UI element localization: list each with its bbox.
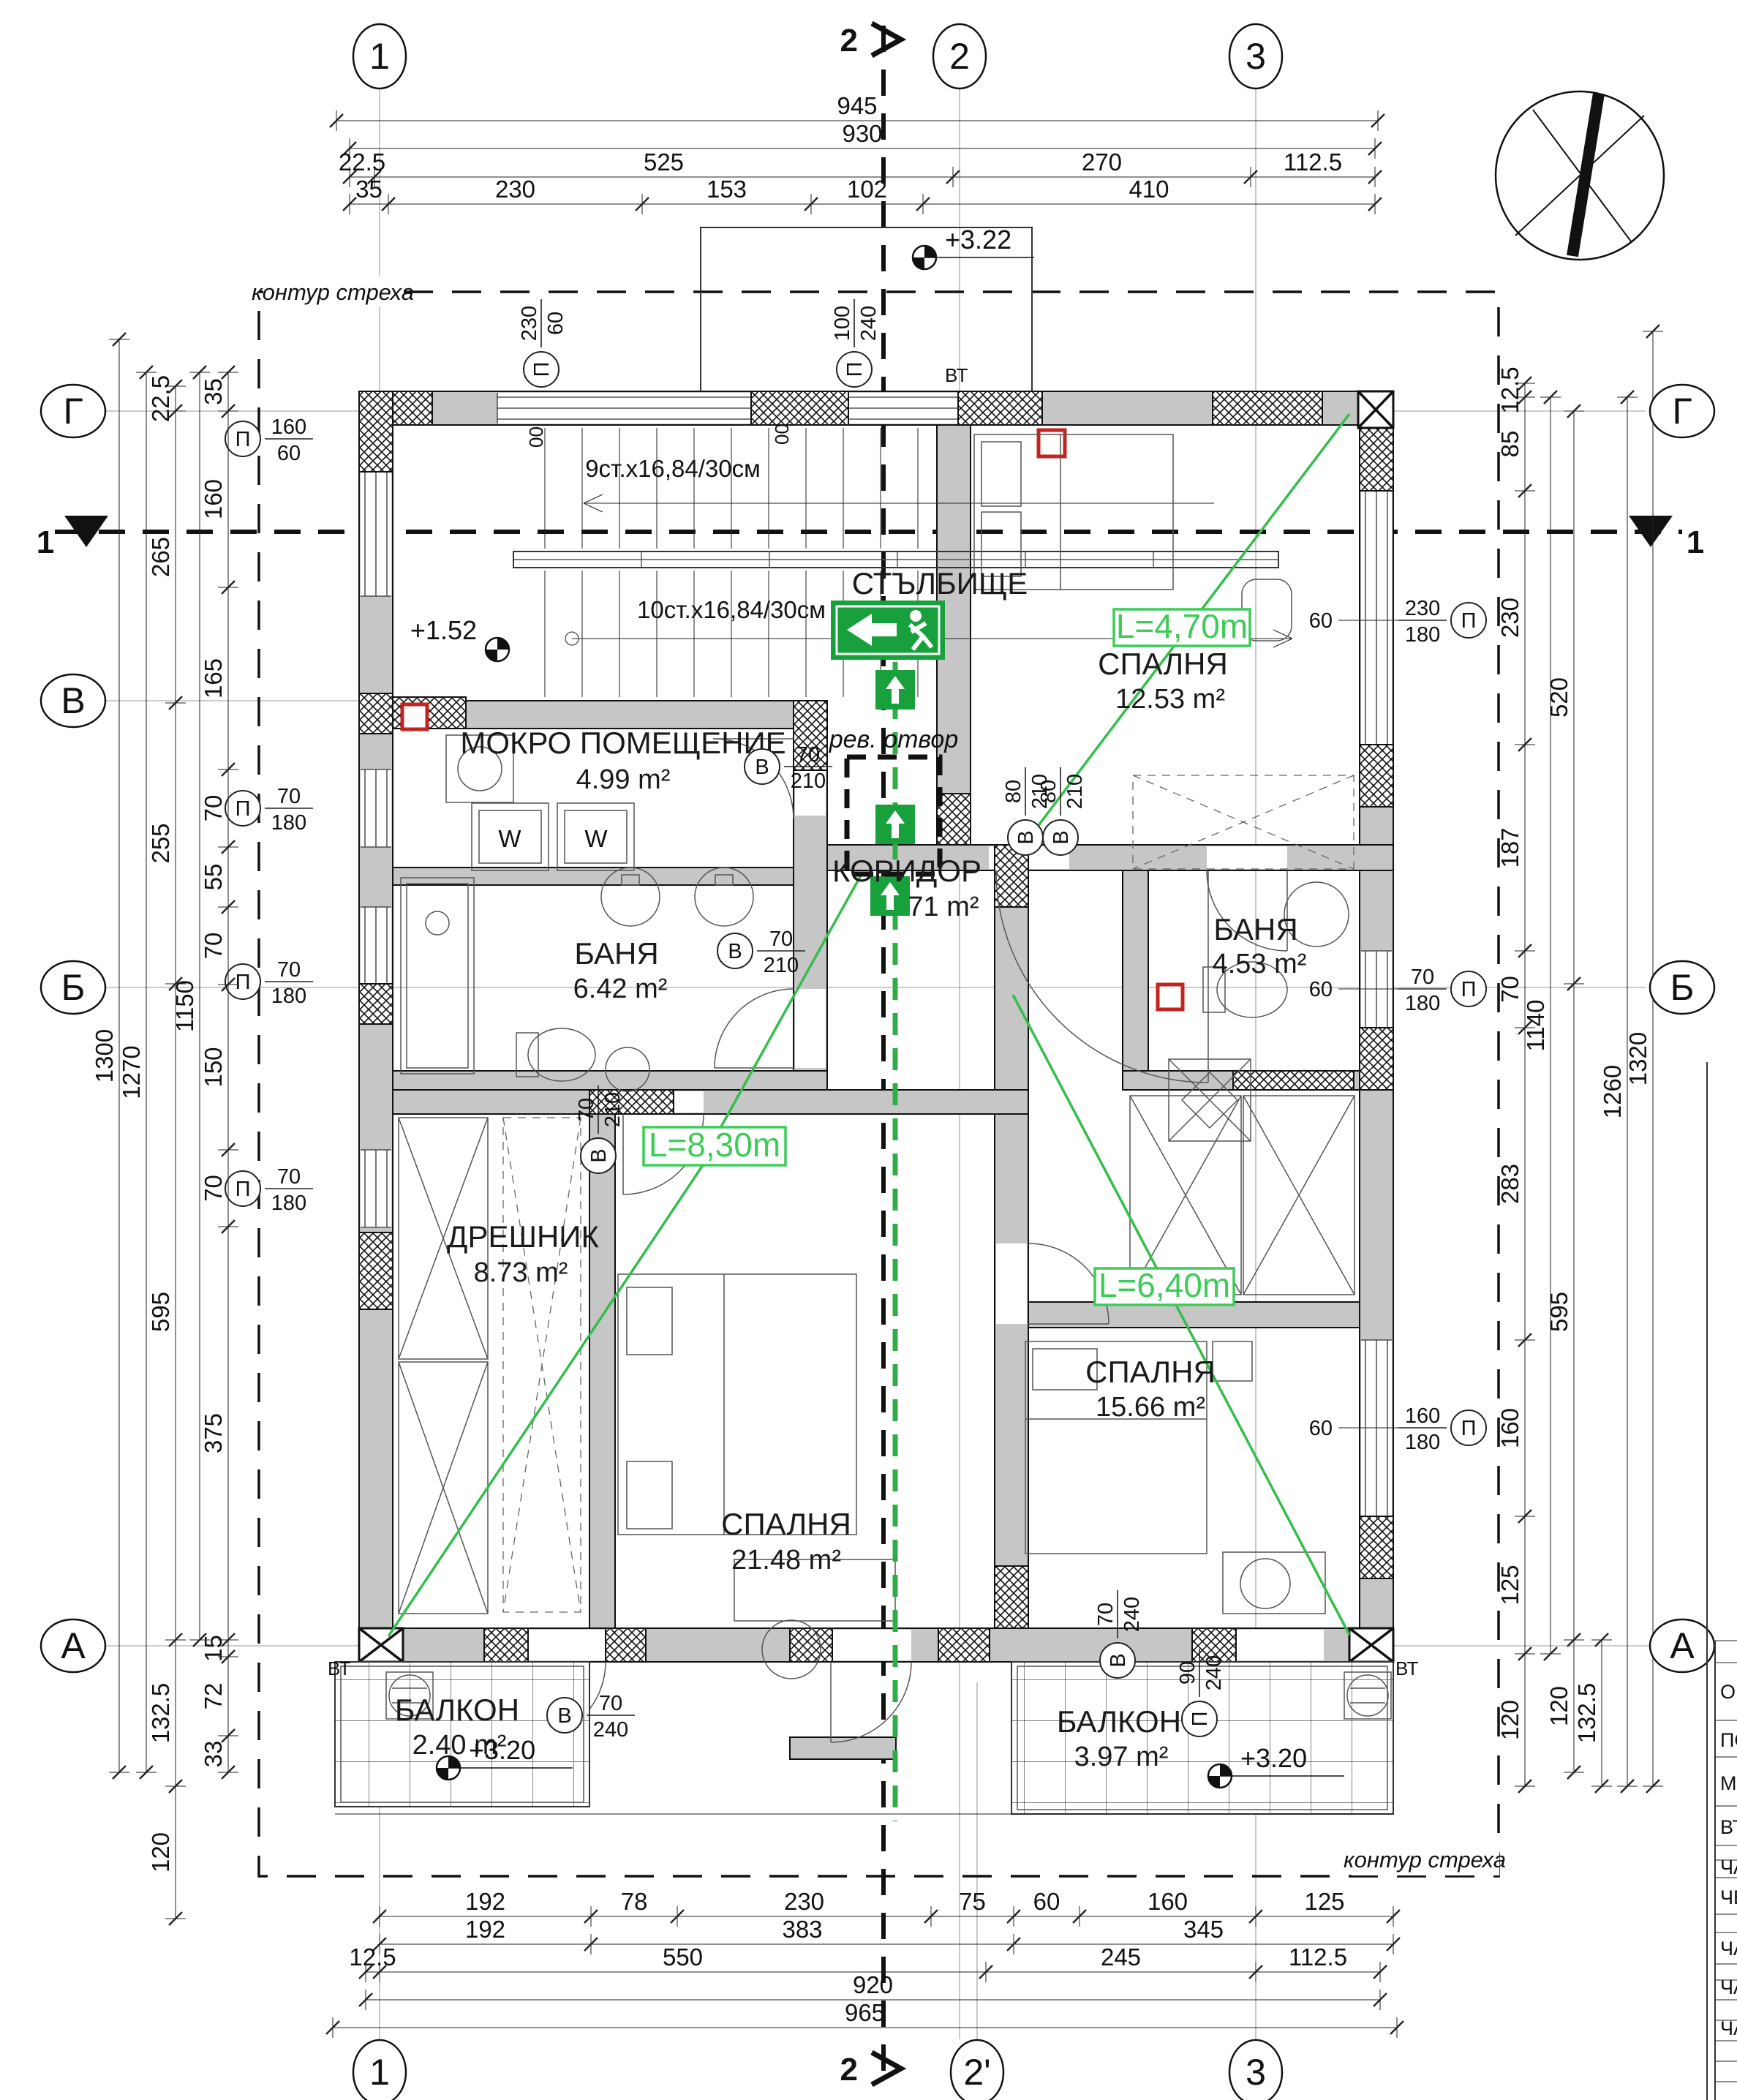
room-balcony-right: БАЛКОН xyxy=(1057,1704,1181,1739)
svg-text:70: 70 xyxy=(277,1165,301,1189)
svg-text:240: 240 xyxy=(1202,1655,1226,1690)
north-arrow-icon xyxy=(1496,91,1664,260)
svg-text:60: 60 xyxy=(1309,609,1333,633)
svg-text:1270: 1270 xyxy=(118,1045,145,1099)
svg-text:3: 3 xyxy=(1246,2052,1266,2093)
section-1-left-label: 1 xyxy=(37,524,54,560)
svg-text:265: 265 xyxy=(147,537,174,577)
washer-2-label: W xyxy=(584,825,608,852)
svg-text:255: 255 xyxy=(147,823,174,863)
corner-pier-ne xyxy=(1358,391,1393,428)
svg-text:70: 70 xyxy=(1496,976,1523,1003)
section-2-bottom-label: 2 xyxy=(840,2052,858,2088)
svg-text:383: 383 xyxy=(782,1916,822,1943)
svg-text:1: 1 xyxy=(369,36,390,77)
exit-sign-icon xyxy=(831,601,945,660)
svg-text:А: А xyxy=(1670,1625,1695,1666)
svg-text:595: 595 xyxy=(147,1292,174,1332)
svg-text:55: 55 xyxy=(200,864,227,891)
svg-text:ВТ: ВТ xyxy=(945,364,968,386)
svg-text:3.97 m²: 3.97 m² xyxy=(1074,1742,1169,1772)
svg-text:П: П xyxy=(236,797,251,821)
svg-text:П: П xyxy=(530,362,554,377)
svg-text:ЧАС: ЧАС xyxy=(1720,2017,1737,2039)
level-roof: +3.22 xyxy=(913,225,1034,269)
room-bedroom-2: СПАЛНЯ xyxy=(721,1507,851,1541)
svg-text:+3.22: +3.22 xyxy=(945,225,1011,255)
svg-text:240: 240 xyxy=(857,306,881,341)
svg-text:4.53 m²: 4.53 m² xyxy=(1213,949,1307,979)
room-bath-2: БАНЯ xyxy=(1213,912,1297,946)
svg-text:210: 210 xyxy=(601,1092,625,1127)
svg-text:12.5: 12.5 xyxy=(1496,366,1523,413)
svg-text:80: 80 xyxy=(1002,780,1025,803)
svg-text:150: 150 xyxy=(200,1047,227,1087)
svg-text:1260: 1260 xyxy=(1599,1065,1626,1118)
svg-text:70: 70 xyxy=(1094,1603,1118,1626)
svg-text:22.5: 22.5 xyxy=(339,148,385,176)
svg-text:160: 160 xyxy=(200,479,227,519)
svg-text:160: 160 xyxy=(1496,1408,1523,1448)
svg-text:П: П xyxy=(1461,978,1477,1001)
axis-g-left: Г xyxy=(41,385,105,437)
svg-text:70: 70 xyxy=(277,958,301,982)
route-arrow-icon-1 xyxy=(875,670,915,710)
escape-label-2: L=8,30m xyxy=(644,1126,785,1165)
svg-text:210: 210 xyxy=(764,954,799,977)
svg-text:180: 180 xyxy=(1405,992,1440,1015)
svg-text:180: 180 xyxy=(1405,1431,1440,1454)
room-wardrobe: ДРЕШНИК xyxy=(447,1219,599,1254)
svg-text:70: 70 xyxy=(599,1692,622,1715)
axis-2-bottom: 2' xyxy=(951,2040,1003,2100)
axis-3-bottom: 3 xyxy=(1229,2040,1282,2100)
svg-text:1140: 1140 xyxy=(1522,1000,1549,1052)
axis-1-bottom: 1 xyxy=(353,2040,406,2100)
svg-text:ВТ: ВТ xyxy=(1395,1657,1419,1679)
stair-wall-mark-2: 00 xyxy=(771,424,793,445)
svg-text:240: 240 xyxy=(593,1718,628,1742)
svg-text:125: 125 xyxy=(1304,1888,1344,1915)
section-2-top-label: 2 xyxy=(840,23,858,59)
svg-text:60: 60 xyxy=(1033,1888,1060,1915)
svg-text:160: 160 xyxy=(1405,1404,1440,1428)
svg-text:33: 33 xyxy=(200,1741,227,1768)
svg-text:70: 70 xyxy=(575,1098,598,1121)
svg-text:МЕС: МЕС xyxy=(1720,1772,1737,1794)
room-labels: СТЪЛБИЩЕ МОКРО ПОМЕЩЕНИЕ 4.99 m² СПАЛНЯ … xyxy=(395,566,1306,1772)
svg-text:1300: 1300 xyxy=(91,1029,118,1083)
axis-2-top: 2 xyxy=(933,24,986,89)
svg-text:Б: Б xyxy=(1670,967,1695,1008)
svg-text:А: А xyxy=(61,1625,86,1666)
opening-markers: П16060 П70180 П70180 П70180 П23060 П1002… xyxy=(225,299,1486,1742)
svg-text:112.5: 112.5 xyxy=(1284,148,1342,176)
svg-text:75: 75 xyxy=(959,1888,986,1915)
svg-text:930: 930 xyxy=(842,120,882,147)
level-landing: +1.52 xyxy=(410,615,509,661)
corner-pier-se xyxy=(1349,1628,1393,1662)
svg-text:180: 180 xyxy=(271,985,306,1008)
eaves-label-bottom: контур стреха xyxy=(1344,1847,1506,1873)
svg-text:В: В xyxy=(587,1148,611,1162)
svg-text:35: 35 xyxy=(355,176,383,203)
svg-text:165: 165 xyxy=(200,658,227,699)
svg-text:В: В xyxy=(61,680,85,721)
svg-text:Г: Г xyxy=(63,391,83,432)
svg-text:125: 125 xyxy=(1496,1565,1523,1605)
svg-text:550: 550 xyxy=(663,1943,703,1971)
axis-b-left: Б xyxy=(41,961,105,1014)
svg-text:525: 525 xyxy=(644,148,684,176)
svg-text:П: П xyxy=(236,971,251,994)
escape-label-3: L=6,40m xyxy=(1095,1266,1234,1305)
svg-text:2': 2' xyxy=(963,2052,990,2093)
svg-text:П: П xyxy=(843,362,867,377)
svg-text:В: В xyxy=(557,1704,571,1728)
svg-text:180: 180 xyxy=(271,1192,306,1215)
svg-text:410: 410 xyxy=(1129,176,1169,203)
svg-text:210: 210 xyxy=(791,769,826,793)
svg-text:ЧАС: ЧАС xyxy=(1720,1938,1737,1960)
svg-text:72: 72 xyxy=(200,1683,227,1710)
door-arcs xyxy=(528,739,1324,1750)
room-bedroom-3: СПАЛНЯ xyxy=(1085,1355,1216,1389)
svg-text:12.5: 12.5 xyxy=(349,1943,396,1971)
svg-text:+3.20: +3.20 xyxy=(469,1735,535,1765)
svg-text:192: 192 xyxy=(465,1916,505,1943)
svg-text:965: 965 xyxy=(845,1999,885,2026)
svg-text:230: 230 xyxy=(495,176,535,203)
svg-text:12.53 m²: 12.53 m² xyxy=(1115,684,1225,715)
svg-text:35: 35 xyxy=(200,378,227,405)
axis-v-left: В xyxy=(41,674,105,727)
svg-text:60: 60 xyxy=(544,312,568,335)
svg-text:160: 160 xyxy=(1148,1888,1188,1915)
corner-pier-sw xyxy=(359,1628,403,1662)
svg-text:132.5: 132.5 xyxy=(1573,1683,1600,1744)
section-1-right-label: 1 xyxy=(1687,524,1704,560)
svg-text:78: 78 xyxy=(621,1888,648,1915)
svg-text:ВТ: ВТ xyxy=(328,1657,351,1679)
svg-text:П: П xyxy=(1188,1712,1212,1727)
svg-text:245: 245 xyxy=(1101,1943,1141,1971)
svg-text:283: 283 xyxy=(1496,1164,1523,1204)
svg-text:240: 240 xyxy=(1120,1597,1144,1632)
svg-text:В: В xyxy=(755,756,769,779)
svg-text:70: 70 xyxy=(769,927,793,951)
svg-text:ЧЕР: ЧЕР xyxy=(1720,1886,1737,1908)
title-block: ОБЕ ПОД МЕС ВЪЗ ЧАС ЧЕР ЧАС ЧАС ЧАС xyxy=(1707,1062,1737,2100)
svg-text:520: 520 xyxy=(1545,677,1572,718)
svg-text:180: 180 xyxy=(1405,623,1440,647)
svg-text:100: 100 xyxy=(831,306,854,341)
svg-text:180: 180 xyxy=(271,811,306,835)
revision-opening-label: рев. отвор xyxy=(829,726,959,753)
svg-text:70: 70 xyxy=(200,1175,227,1202)
svg-text:В: В xyxy=(1014,830,1038,844)
svg-text:595: 595 xyxy=(1545,1292,1572,1332)
svg-text:15.66 m²: 15.66 m² xyxy=(1096,1392,1205,1423)
svg-text:80: 80 xyxy=(1037,780,1060,803)
svg-text:60: 60 xyxy=(1309,1417,1333,1440)
svg-text:112.5: 112.5 xyxy=(1289,1943,1347,1971)
svg-text:8.73 m²: 8.73 m² xyxy=(474,1257,568,1288)
svg-text:П: П xyxy=(1461,609,1477,633)
axis-1-top: 1 xyxy=(353,24,406,89)
svg-text:ЧАС: ЧАС xyxy=(1720,1976,1737,1998)
svg-text:3: 3 xyxy=(1246,36,1266,77)
svg-text:+1.52: +1.52 xyxy=(410,615,477,645)
eaves-label-top: контур стреха xyxy=(252,279,414,305)
svg-text:П: П xyxy=(236,428,251,451)
room-balcony-left: БАЛКОН xyxy=(395,1693,519,1727)
section-line-1: 1 1 xyxy=(37,516,1704,560)
room-corridor: КОРИДОР xyxy=(832,854,981,888)
route-arrow-icon-2 xyxy=(875,805,915,844)
floorplan-page: контур стреха контур стреха 2 2 1 1 xyxy=(0,0,1737,2100)
floorplan-canvas: контур стреха контур стреха 2 2 1 1 xyxy=(0,0,1737,2100)
svg-text:132.5: 132.5 xyxy=(147,1683,174,1744)
escape-label-1: L=4,70m xyxy=(1114,607,1250,646)
svg-text:21.48 m²: 21.48 m² xyxy=(731,1545,841,1576)
svg-text:187: 187 xyxy=(1496,827,1523,868)
svg-text:210: 210 xyxy=(1063,774,1087,809)
svg-text:71 m²: 71 m² xyxy=(908,892,979,922)
svg-text:L=6,40m: L=6,40m xyxy=(1099,1266,1230,1304)
svg-text:L=4,70m: L=4,70m xyxy=(1116,607,1248,645)
svg-text:В: В xyxy=(728,940,742,963)
svg-text:70: 70 xyxy=(796,743,820,767)
svg-text:В: В xyxy=(1107,1653,1130,1667)
svg-text:ВЪЗ: ВЪЗ xyxy=(1720,1816,1737,1838)
room-stairwell: СТЪЛБИЩЕ xyxy=(852,566,1028,601)
svg-text:Б: Б xyxy=(61,967,86,1008)
svg-text:70: 70 xyxy=(277,785,301,808)
svg-text:120: 120 xyxy=(1545,1686,1572,1726)
svg-text:L=8,30m: L=8,30m xyxy=(649,1126,780,1164)
svg-text:945: 945 xyxy=(837,92,877,119)
room-bedroom-1: СПАЛНЯ xyxy=(1098,647,1228,681)
svg-text:920: 920 xyxy=(853,1971,893,1998)
stair-run-upper-label: 9ст.x16,84/30см xyxy=(585,455,761,482)
svg-text:345: 345 xyxy=(1183,1916,1224,1943)
svg-text:22.5: 22.5 xyxy=(147,375,174,422)
room-bath-1: БАНЯ xyxy=(574,936,658,971)
svg-text:1320: 1320 xyxy=(1624,1032,1651,1085)
svg-text:ЧАС: ЧАС xyxy=(1720,1856,1737,1878)
axis-g-right: Г xyxy=(1650,385,1714,437)
svg-text:2: 2 xyxy=(949,36,970,77)
svg-text:60: 60 xyxy=(1309,978,1333,1001)
svg-text:ОБЕ: ОБЕ xyxy=(1720,1681,1737,1703)
svg-text:70: 70 xyxy=(1411,966,1434,989)
svg-text:60: 60 xyxy=(277,442,301,465)
svg-text:120: 120 xyxy=(1496,1700,1523,1740)
svg-text:192: 192 xyxy=(465,1888,505,1915)
svg-text:120: 120 xyxy=(147,1832,174,1873)
svg-text:102: 102 xyxy=(847,176,887,203)
svg-text:85: 85 xyxy=(1496,431,1523,458)
svg-text:70: 70 xyxy=(200,795,227,822)
stair-wall-mark-1: 00 xyxy=(525,426,547,448)
svg-text:4.99 m²: 4.99 m² xyxy=(576,764,671,795)
svg-text:153: 153 xyxy=(707,176,747,203)
svg-text:1150: 1150 xyxy=(171,980,198,1032)
svg-text:6.42 m²: 6.42 m² xyxy=(573,974,668,1004)
svg-text:230: 230 xyxy=(1405,597,1440,620)
svg-text:90: 90 xyxy=(1176,1661,1199,1685)
room-laundry: МОКРО ПОМЕЩЕНИЕ xyxy=(460,726,785,760)
washer-1-label: W xyxy=(498,825,521,852)
svg-text:П: П xyxy=(236,1178,251,1201)
svg-text:Г: Г xyxy=(1672,391,1692,432)
axis-b-right: Б xyxy=(1650,961,1714,1014)
svg-text:230: 230 xyxy=(518,306,541,341)
svg-text:15: 15 xyxy=(200,1635,227,1662)
svg-text:П: П xyxy=(1461,1417,1477,1440)
svg-text:270: 270 xyxy=(1082,148,1122,176)
svg-text:1: 1 xyxy=(369,2052,390,2093)
svg-text:230: 230 xyxy=(1496,598,1523,638)
svg-text:230: 230 xyxy=(784,1888,824,1915)
svg-text:В: В xyxy=(1050,830,1073,844)
axis-a-left: А xyxy=(41,1619,105,1672)
axis-a-right: А xyxy=(1650,1619,1714,1672)
axis-3-top: 3 xyxy=(1229,24,1282,89)
svg-text:ПОД: ПОД xyxy=(1720,1729,1737,1751)
svg-text:70: 70 xyxy=(200,933,227,960)
svg-text:160: 160 xyxy=(271,415,306,439)
svg-text:375: 375 xyxy=(200,1413,227,1453)
svg-text:+3.20: +3.20 xyxy=(1240,1743,1307,1773)
